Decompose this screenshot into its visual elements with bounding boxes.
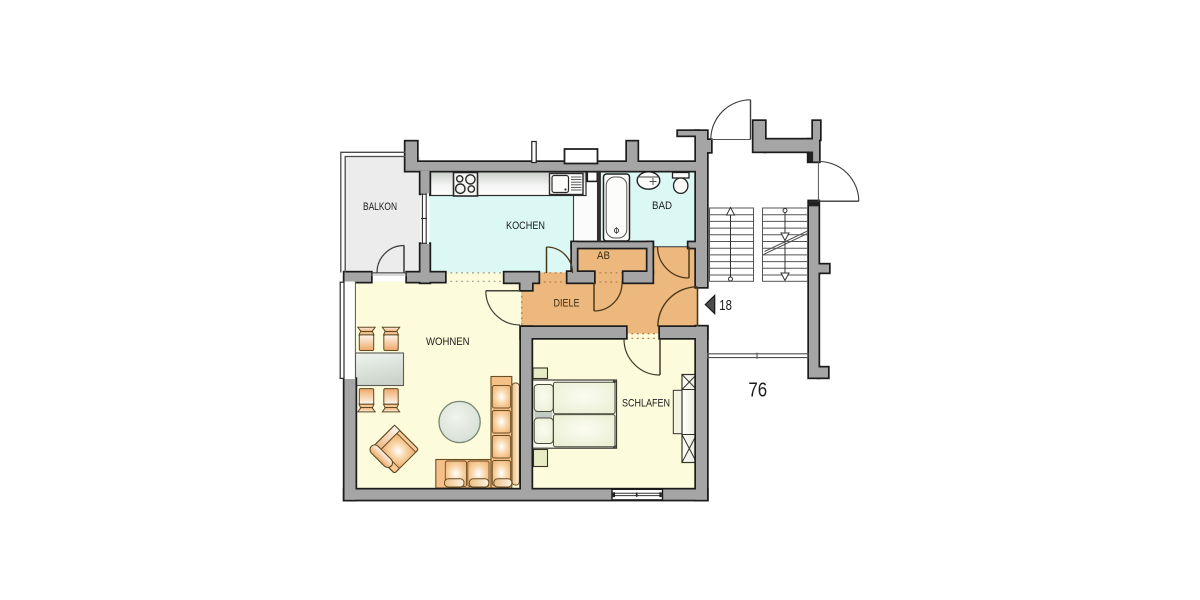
svg-text:KOCHEN: KOCHEN xyxy=(506,220,545,232)
svg-text:SCHLAFEN: SCHLAFEN xyxy=(622,397,670,409)
svg-text:BAD: BAD xyxy=(652,200,672,212)
svg-text:WOHNEN: WOHNEN xyxy=(426,336,470,348)
svg-text:BALKON: BALKON xyxy=(363,201,397,213)
svg-text:DIELE: DIELE xyxy=(554,298,580,310)
svg-text:18: 18 xyxy=(719,297,732,314)
svg-text:76: 76 xyxy=(748,379,767,401)
svg-text:AB: AB xyxy=(597,250,610,262)
